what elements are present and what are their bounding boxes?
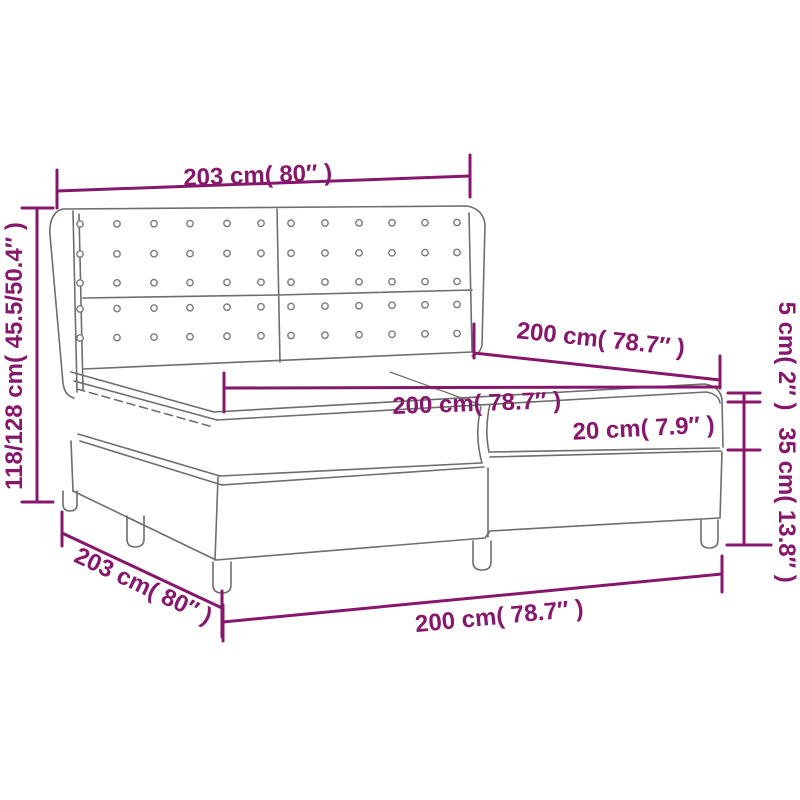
headboard-button-grid [77, 219, 460, 341]
headboard-button [77, 335, 83, 341]
base-bottom-front-edge [216, 518, 719, 560]
headboard-mid-seam [83, 290, 472, 298]
headboard-button [322, 279, 328, 285]
headboard-button [77, 221, 83, 227]
headboard-button [224, 279, 230, 285]
headboard-button [322, 303, 328, 309]
bed-leg [63, 491, 77, 511]
base-right-end-edge [720, 452, 722, 518]
dim-frame-width: 200 cm( 78.7″ ) [223, 556, 722, 641]
topper-stitch-line [77, 389, 213, 427]
headboard-button [288, 220, 294, 226]
headboard-button [114, 334, 120, 340]
headboard-button [322, 220, 328, 226]
dim-label-mattress-width: 200 cm( 78.7″ ) [392, 387, 562, 420]
headboard-button [322, 332, 328, 338]
headboard-button [322, 250, 328, 256]
headboard-button [224, 333, 230, 339]
headboard-button [258, 250, 264, 256]
headboard-button [356, 250, 362, 256]
headboard-right-wing-inner [469, 213, 472, 351]
headboard-button [114, 305, 120, 311]
headboard-button [422, 249, 428, 255]
dim-label-frame-length: 203 cm( 80″ ) [70, 542, 216, 630]
headboard-button [454, 249, 460, 255]
headboard-left-wing-inner2 [79, 214, 83, 390]
bed-leg [213, 562, 231, 593]
headboard-button [187, 220, 193, 226]
headboard-button [288, 332, 294, 338]
dim-frame-length: 203 cm( 80″ ) [62, 512, 222, 637]
headboard-button [224, 220, 230, 226]
headboard-button [258, 304, 264, 310]
dim-label-headboard-width: 203 cm( 80″ ) [183, 159, 333, 191]
base-back-left-edge [71, 441, 73, 491]
headboard [50, 206, 485, 398]
headboard-button [77, 251, 83, 257]
headboard-button [356, 279, 362, 285]
headboard-button [288, 279, 294, 285]
headboard-button [389, 331, 395, 337]
headboard-button [422, 219, 428, 225]
dim-mattress-width: 200 cm( 78.7″ ) [224, 373, 720, 420]
legs [63, 491, 718, 593]
headboard-button [151, 251, 157, 257]
headboard-button [187, 334, 193, 340]
headboard-center-seam [277, 209, 280, 362]
headboard-button [77, 306, 83, 312]
headboard-button [389, 279, 395, 285]
headboard-button [422, 278, 428, 284]
headboard-button [288, 303, 294, 309]
headboard-outline [50, 206, 485, 398]
headboard-button [454, 278, 460, 284]
dim-headboard-height: 118/128 cm( 45.5/50.4″ ) [1, 208, 53, 502]
base-front-corner-edge [215, 477, 218, 560]
headboard-bottom-edge [83, 352, 472, 369]
headboard-button [258, 279, 264, 285]
headboard-button [151, 280, 157, 286]
headboard-button [114, 251, 120, 257]
dim-line [224, 387, 720, 388]
dimension-annotations: 203 cm( 80″ ) 118/128 cm( 45.5/50.4″ ) 2… [1, 155, 800, 641]
topper-edge-left [74, 381, 217, 420]
headboard-button [187, 250, 193, 256]
headboard-button [258, 333, 264, 339]
headboard-button [422, 331, 428, 337]
headboard-button [151, 334, 157, 340]
dim-label-mattress-thickness: 20 cm( 7.9″ ) [572, 411, 715, 445]
headboard-button [389, 302, 395, 308]
base-top-left-edge [80, 441, 222, 485]
headboard-button [389, 250, 395, 256]
headboard-button [187, 279, 193, 285]
base [71, 441, 722, 560]
dim-mattress-thickness: 20 cm( 7.9″ ) [572, 411, 715, 445]
dim-right-stack: 5 cm( 2″ ) 35 cm( 13.8″ ) [727, 302, 800, 583]
bed-leg [473, 541, 491, 570]
headboard-button [454, 301, 460, 307]
headboard-button [288, 250, 294, 256]
headboard-button [187, 305, 193, 311]
dimension-diagram: 203 cm( 80″ ) 118/128 cm( 45.5/50.4″ ) 2… [0, 0, 800, 800]
dim-label-mattress-length: 200 cm( 78.7″ ) [515, 317, 686, 362]
bed-drawing [50, 206, 723, 593]
headboard-button [258, 220, 264, 226]
headboard-button [356, 332, 362, 338]
headboard-button [77, 280, 83, 286]
headboard-button [114, 280, 120, 286]
mattress-bottom-left-edge [78, 434, 220, 476]
dim-label-headboard-height: 118/128 cm( 45.5/50.4″ ) [1, 222, 28, 490]
headboard-button [454, 219, 460, 225]
headboard-button [151, 305, 157, 311]
headboard-button [422, 302, 428, 308]
mattress-top-left-edge [71, 372, 214, 412]
diagram-svg: 203 cm( 80″ ) 118/128 cm( 45.5/50.4″ ) 2… [0, 0, 800, 800]
headboard-button [224, 250, 230, 256]
headboard-button [151, 221, 157, 227]
dim-label-topper-thickness: 5 cm( 2″ ) [773, 302, 800, 411]
headboard-button [356, 303, 362, 309]
dim-label-base-height: 35 cm( 13.8″ ) [773, 427, 800, 583]
bed-leg [701, 520, 718, 548]
headboard-button [114, 221, 120, 227]
dim-mattress-length: 200 cm( 78.7″ ) [474, 317, 720, 388]
headboard-left-wing-inner [73, 211, 77, 392]
headboard-button [389, 220, 395, 226]
dim-headboard-width: 203 cm( 80″ ) [57, 155, 470, 208]
headboard-button [454, 330, 460, 336]
headboard-button [224, 304, 230, 310]
headboard-button [356, 220, 362, 226]
